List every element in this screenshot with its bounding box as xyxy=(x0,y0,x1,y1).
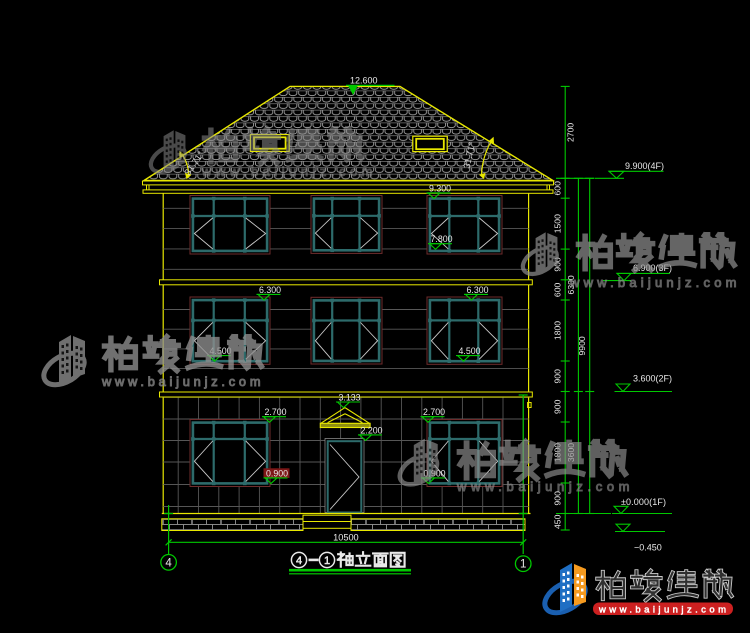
svg-text:10500: 10500 xyxy=(333,532,359,542)
svg-text:3.133: 3.133 xyxy=(339,392,361,402)
svg-text:900: 900 xyxy=(553,369,563,384)
svg-text:1500: 1500 xyxy=(553,214,563,233)
svg-text:9.300: 9.300 xyxy=(429,183,451,193)
svg-text:600: 600 xyxy=(553,283,563,298)
svg-text:6.300: 6.300 xyxy=(467,285,489,295)
svg-text:2.700: 2.700 xyxy=(265,407,287,417)
svg-text:2.700: 2.700 xyxy=(423,407,445,417)
svg-text:7.800: 7.800 xyxy=(431,234,453,244)
svg-text:4: 4 xyxy=(165,557,172,569)
svg-text:9900: 9900 xyxy=(577,336,587,355)
svg-text:−0.450: −0.450 xyxy=(634,543,662,553)
svg-text:4.500: 4.500 xyxy=(459,346,481,356)
svg-text:600: 600 xyxy=(553,181,563,196)
svg-text:4: 4 xyxy=(296,555,302,567)
svg-text:2700: 2700 xyxy=(566,123,576,142)
svg-text:450: 450 xyxy=(553,514,563,529)
svg-text:0.900: 0.900 xyxy=(266,468,288,478)
svg-text:1: 1 xyxy=(520,559,526,571)
svg-text:900: 900 xyxy=(553,399,563,414)
svg-text:2.200: 2.200 xyxy=(361,425,383,435)
svg-text:6.300: 6.300 xyxy=(259,285,281,295)
svg-text:12.600: 12.600 xyxy=(350,76,378,86)
svg-text:±0.000(1F): ±0.000(1F) xyxy=(621,497,666,507)
svg-text:1: 1 xyxy=(324,555,330,567)
svg-text:9.900(4F): 9.900(4F) xyxy=(625,161,664,171)
svg-text:3.600(2F): 3.600(2F) xyxy=(633,374,672,384)
svg-text:1800: 1800 xyxy=(553,321,563,340)
